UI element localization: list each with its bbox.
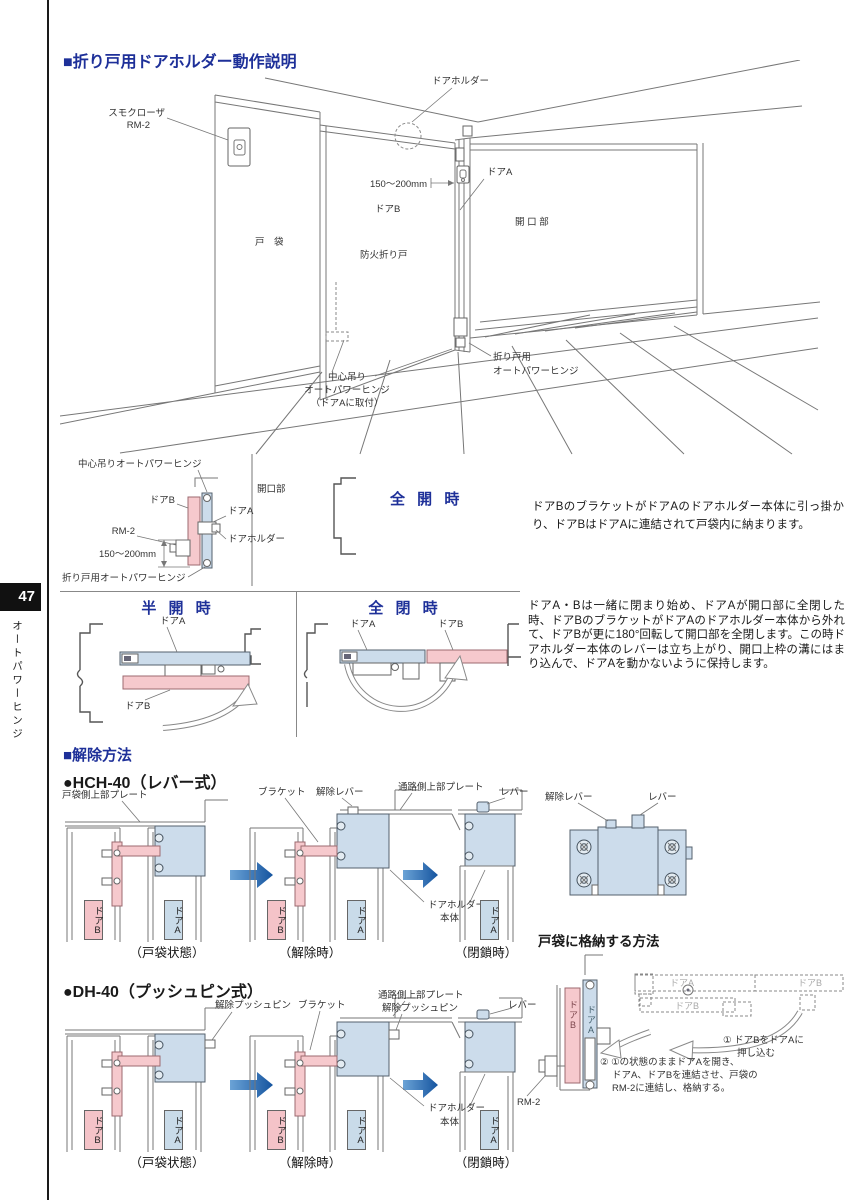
caption-locked: （閉鎖時） [455,945,518,960]
fold-hinge-label: 折り戸用オートパワーヒンジ [62,572,186,584]
dim-label: 150〜200mm [370,179,427,190]
holder-body-label-2: 本体 [440,912,460,924]
dh40-door-b-tag-2: ドアB [267,1110,286,1150]
step-arrow-2 [403,862,438,888]
door-b-bar [123,676,249,689]
dh40-door-b-tag-1: ドアB [84,1110,103,1150]
door-holder-label: ドアホルダー [432,75,489,87]
release-pin-label-1: 解除プッシュピン [215,999,291,1011]
half-open-diagram: ドアA ドアB [65,612,293,738]
caption-locked: （閉鎖時） [455,1155,518,1170]
dim-label: 150〜200mm [99,549,156,560]
closing-jamb [507,624,521,666]
door-b-label: ドアB [375,204,400,215]
step-arrow-2 [403,1072,438,1098]
leader-lines [167,88,491,376]
opening-label: 開口部 [257,483,286,495]
door-a-label: ドアA [228,506,254,517]
full-open-title: 全 開 時 [390,488,463,509]
opening-label: 開 口 部 [515,216,549,228]
dh40-diagram: 解除プッシュピン ブラケット 通路側上部プレート 解除プッシュピン レバー ドア… [60,990,538,1175]
opening-jamb [334,478,356,554]
pocket-plate-label: 戸袋側上部プレート [62,789,148,801]
center-hinge-label-1: 中心吊り [328,371,366,383]
folding-door-b [320,125,455,400]
center-hinge-label-2: オートパワーヒンジ [304,385,390,396]
hch40-door-a-tag-3: ドアA [480,900,499,940]
frame-corner [195,478,218,487]
smoke-closer-unit [228,128,250,166]
door-a-label: ドアA [160,616,186,627]
storage-diagram: ドアA ドアB ドアB ① ドアBをドアAに 押し込む ② ①の状態のままドアA… [515,950,848,1125]
holder-hardware [165,665,224,676]
pocket-label: 戸 袋 [255,236,284,248]
holder-block [597,1028,610,1044]
page-number-badge: 47 [0,583,41,611]
hch40-door-a-tag-1: ドアA [164,900,183,940]
rm2-label: RM-2 [112,526,135,537]
ghost-door-b-label: ドアB [798,978,822,988]
release-header: ■解除方法 [63,744,132,765]
lever-label: レバー [648,792,677,803]
holder-body-leaders [390,1074,485,1106]
top-pivot [204,495,211,502]
storage-door-a-label: ドアA [585,1005,598,1036]
door-a-device-icon [457,166,469,183]
door-b-label: ドアB [150,495,175,506]
door-a-label: ドアA [487,167,513,178]
pocket-rm2-position [326,282,348,341]
sidebar-category: オートパワーヒンジ [10,620,25,920]
dh40-door-a-tag-2: ドアA [347,1110,366,1150]
swing-arrow-outer [163,700,241,728]
dh40-door-a-tag-1: ドアA [164,1110,183,1150]
page-number: 47 [18,588,35,605]
door-a-bar [120,652,250,665]
holder-body-label-1: ドアホルダー [428,1102,485,1114]
floor-grid [60,300,818,454]
caption-pocket: （戸袋状態） [129,945,204,960]
door-a-panel [454,126,472,352]
door-holder-label: ドアホルダー [228,533,285,545]
caption-pocket: （戸袋状態） [129,1155,204,1170]
step1-line2: 押し込む [737,1047,775,1059]
fold-hinge-label-1: 折り戸用 [493,351,531,363]
smoke-closer-model: RM-2 [127,120,150,131]
lever-label: レバー [508,1000,537,1011]
release-pin-label-2: 解除プッシュピン [382,1002,458,1014]
center-hinge-label: 中心吊りオートパワーヒンジ [78,458,202,470]
step-arrow-1 [230,862,273,888]
caption-release: （解除時） [279,1155,342,1170]
release-lever-label: 解除レバー [545,791,593,803]
bracket-label: ブラケット [258,786,306,798]
top-pivot [586,981,594,989]
smoke-closer-label: スモクローザ [108,108,165,119]
catalog-page: 47 オートパワーヒンジ ■折り戸用ドアホルダー動作説明 [0,0,848,1200]
rm2-unit [539,1056,565,1076]
holder-body-label-2: 本体 [440,1116,460,1128]
bottom-pivot [204,560,211,567]
leader-lines [358,630,453,650]
holder-unit [570,815,692,895]
hch40-door-a-tag-2: ドアA [347,900,366,940]
caption-release: （解除時） [279,945,342,960]
fire-door-label: 防火折り戸 [360,249,408,261]
release-lever-label: 解除レバー [316,786,364,798]
door-holder-plan [198,522,220,534]
full-close-diagram: ドアA ドアB [295,612,523,738]
step2-line1: ② ①の状態のままドアAを開き、 [600,1056,739,1068]
hinge-core [344,654,351,659]
fold-hinge-label-2: オートパワーヒンジ [493,366,579,377]
door-a-label: ドアA [350,619,376,630]
full-open-diagram: 中心吊りオートパワーヒンジ ドアB 開口部 ドアA RM-2 ドアホルダー 15… [60,450,540,590]
perspective-diagram: スモクローザ RM-2 ドアホルダー 150〜200mm ドアA ドアB 戸 袋… [60,60,820,455]
storage-title: 戸袋に格納する方法 [538,930,660,950]
ghost-door-a-label: ドアA [670,978,694,988]
ghost-door-b2-label: ドアB [675,1001,699,1011]
step-arrow-1 [230,1072,273,1098]
door-b-bar [427,650,507,663]
hch40-door-b-tag-2: ドアB [267,900,286,940]
storage-door-b-label: ドアB [567,1000,580,1031]
full-close-paragraph: ドアA・Bは一緒に閉まり始め、ドアAが開口部に全閉した時、ドアBのブラケットがド… [528,599,845,672]
leader-lines [578,803,658,821]
center-hinge-label-3: （ドアAに取付） [311,397,384,409]
bottom-pivot [586,1081,594,1089]
left-rule [47,0,49,1200]
step1-line1: ① ドアBをドアAに [723,1035,804,1046]
step2-line3: RM-2に連結し、格納する。 [612,1082,730,1094]
step2-line2: ドアA、ドアBを連結させ、戸袋の [612,1069,758,1081]
door-b-label: ドアB [125,701,150,712]
lever-label: レバー [500,787,529,798]
holder-strip [585,1038,595,1080]
wall-jamb [305,624,329,707]
dh40-door-a-tag-3: ドアA [480,1110,499,1150]
dim-arrow-bottom [161,561,167,567]
door-b-label: ドアB [438,619,463,630]
holder-detail-diagram: 解除レバー レバー [540,785,750,905]
passage-plate-label: 通路側上部プレート [378,990,464,1001]
full-open-paragraph: ドアBのブラケットがドアAのドアホルダー本体に引っ掛かり、ドアBはドアAに連結さ… [532,498,844,535]
hinge-core [124,656,131,661]
hch40-diagram: 戸袋側上部プレート ブラケット 解除レバー 通路側上部プレート レバー ドアホル… [60,780,538,965]
rm2-unit-plan [170,540,190,556]
section-divider-h [60,591,520,592]
wall-jamb [78,624,104,722]
hch40-door-b-tag-1: ドアB [84,900,103,940]
dim-arrowhead [448,180,454,186]
bracket-label: ブラケット [298,999,346,1011]
passage-plate-label: 通路側上部プレート [398,781,484,793]
holder-body-label-1: ドアホルダー [428,899,485,911]
holder-hardware [353,663,455,681]
